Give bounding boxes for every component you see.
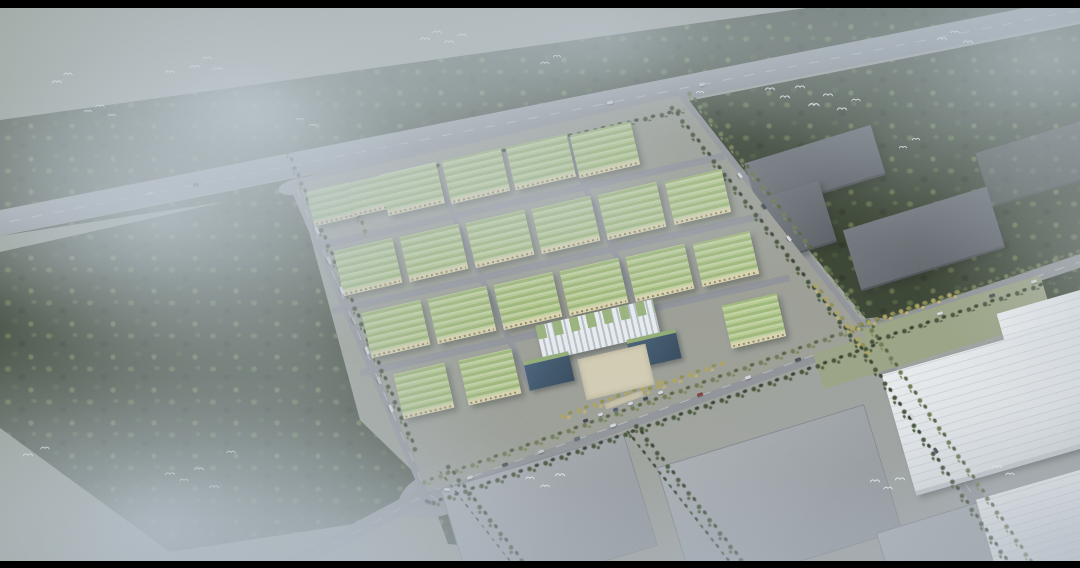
fog-patch-11 [330,120,850,300]
letterbox-bottom [0,561,1080,568]
aerial-rendering-scene: Aerial perspective rendering of an indus… [0,0,1080,568]
letterbox-top [0,0,1080,8]
fog-layer [0,0,1080,568]
fog-patch-9 [800,420,1080,568]
rendering-frame: Aerial perspective rendering of an indus… [0,0,1080,568]
